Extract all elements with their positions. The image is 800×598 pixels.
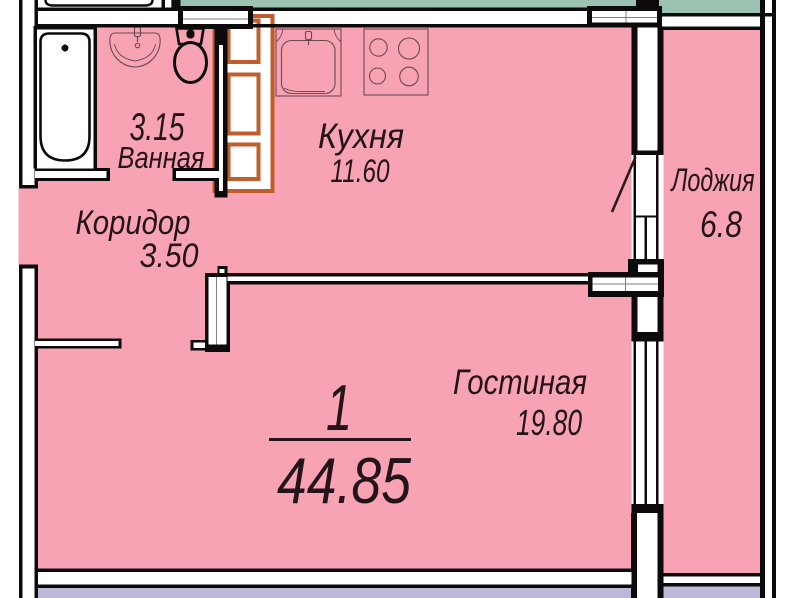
svg-text:6.8: 6.8 [700, 204, 742, 245]
svg-text:Лоджия: Лоджия [670, 162, 754, 198]
svg-text:44.85: 44.85 [277, 444, 412, 517]
svg-text:Кухня: Кухня [318, 117, 404, 156]
svg-text:1: 1 [326, 371, 352, 444]
svg-text:Гостиная: Гостиная [453, 363, 587, 402]
svg-text:3.50: 3.50 [140, 237, 199, 275]
svg-text:19.80: 19.80 [516, 402, 582, 443]
svg-text:Ванная: Ванная [118, 140, 205, 175]
svg-text:11.60: 11.60 [331, 153, 390, 189]
